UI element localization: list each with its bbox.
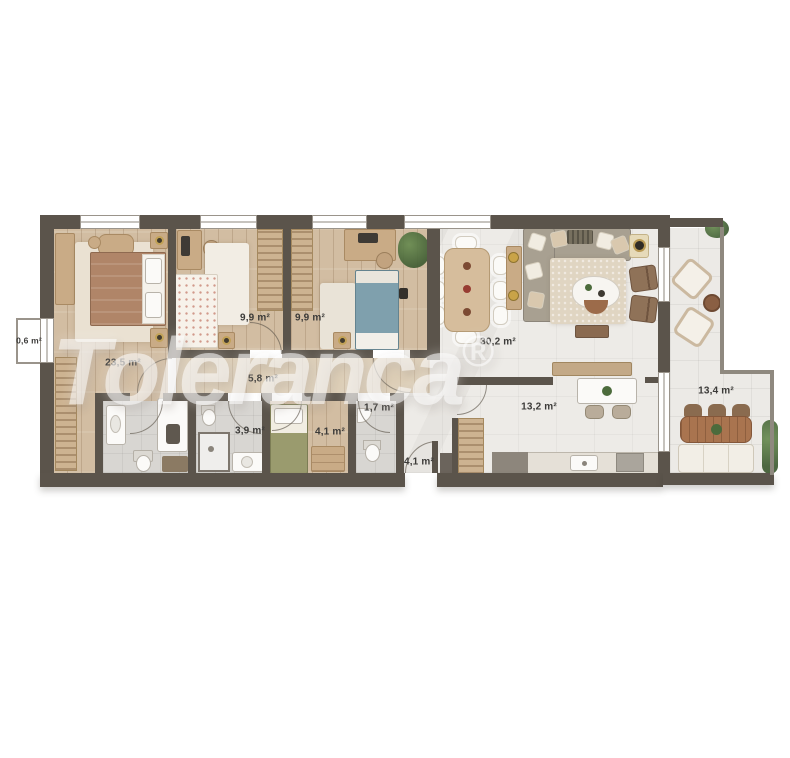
wall xyxy=(283,229,291,350)
bath-mat xyxy=(162,456,188,472)
window xyxy=(658,372,670,452)
room-label-shaft: 0,6 m² xyxy=(16,335,42,346)
window xyxy=(312,215,367,229)
tv-console xyxy=(575,325,609,338)
room-label-hallway: 5,8 m² xyxy=(248,374,278,385)
wall xyxy=(645,377,658,383)
wall xyxy=(188,401,196,473)
terrace-wall xyxy=(662,218,723,227)
room-label-study: 4,1 m² xyxy=(315,427,345,438)
wall xyxy=(163,393,228,401)
wall xyxy=(390,393,404,401)
shoe-cabinet xyxy=(440,453,452,473)
dining-chair xyxy=(455,330,477,344)
outdoor-bench xyxy=(678,444,754,473)
wall xyxy=(40,363,54,473)
toilet xyxy=(136,455,151,472)
plate xyxy=(463,308,471,316)
sofa-cushion xyxy=(550,230,569,249)
room-label-terrace: 13,4 m² xyxy=(698,386,734,397)
wardrobe xyxy=(55,357,77,471)
bed-single xyxy=(175,274,218,348)
terrace-rail xyxy=(720,370,774,374)
dresser xyxy=(311,446,345,472)
room-label-kitchen: 13,2 m² xyxy=(521,402,557,413)
plate xyxy=(463,262,471,270)
lamp-icon xyxy=(508,290,519,301)
window xyxy=(40,318,54,363)
lamp-icon xyxy=(222,336,231,345)
wall xyxy=(40,473,405,487)
round-table xyxy=(703,294,721,312)
wardrobe xyxy=(257,229,283,311)
side-table xyxy=(88,236,101,249)
terrace-rail xyxy=(720,227,724,374)
room-label-living-dining: 30,2 m² xyxy=(480,337,516,348)
pillow xyxy=(145,258,162,284)
bench xyxy=(55,233,75,305)
armchair xyxy=(629,294,659,323)
drain-icon xyxy=(208,446,214,452)
armchair xyxy=(628,264,658,293)
wall-tv-icon xyxy=(399,288,408,299)
wall xyxy=(302,393,358,401)
sofa-tray xyxy=(567,230,593,244)
lamp-icon xyxy=(338,336,347,345)
room-label-bedroom3: 9,9 m² xyxy=(295,313,325,324)
basin xyxy=(241,456,253,468)
desk-chair xyxy=(376,252,393,269)
monitor-icon xyxy=(181,236,190,256)
wall xyxy=(348,401,356,473)
sideboard xyxy=(552,362,632,376)
sliding-door xyxy=(658,247,670,302)
wall xyxy=(427,229,440,360)
wall xyxy=(658,215,670,247)
bed-single xyxy=(355,270,399,350)
lamp-icon xyxy=(508,252,519,263)
entry-closet xyxy=(458,418,484,475)
terrace-rail xyxy=(770,370,774,475)
monitor-icon xyxy=(358,233,378,243)
stove xyxy=(616,453,644,472)
wall xyxy=(658,302,670,372)
plant-icon xyxy=(585,284,592,291)
toilet xyxy=(202,409,216,426)
wall xyxy=(437,473,663,487)
pillow xyxy=(145,292,162,318)
wall xyxy=(40,215,54,318)
plant-icon xyxy=(602,386,612,396)
wall xyxy=(367,215,404,229)
wall xyxy=(658,452,670,473)
wall xyxy=(457,377,553,385)
shower xyxy=(198,432,230,472)
sofa-cushion xyxy=(527,291,546,310)
plant-icon xyxy=(711,424,722,435)
wardrobe xyxy=(291,229,313,311)
floor-plan: 0,6 m² 23,5 m² 9,9 m² 9,9 m² 5,8 m² 3,9 … xyxy=(0,0,790,758)
wall xyxy=(95,393,103,473)
plate xyxy=(463,285,471,293)
wall xyxy=(491,215,662,229)
decor xyxy=(598,290,605,297)
candle-icon xyxy=(633,239,646,252)
wall xyxy=(168,229,176,358)
window xyxy=(404,215,491,229)
wall xyxy=(282,350,291,358)
wall xyxy=(261,393,272,401)
lamp-icon xyxy=(155,236,164,245)
wall xyxy=(452,418,458,473)
wall xyxy=(262,401,270,473)
room-label-bedroom2: 9,9 m² xyxy=(240,313,270,324)
wall xyxy=(291,350,373,358)
wall xyxy=(257,215,312,229)
wall xyxy=(396,401,404,473)
window xyxy=(200,215,257,229)
bar-stool xyxy=(612,405,631,419)
room-label-bathroom: 3,9 m² xyxy=(235,426,265,437)
room-label-bedroom1: 23,5 m² xyxy=(105,358,141,369)
lamp-icon xyxy=(155,333,164,342)
bar-stool xyxy=(585,405,604,419)
room-label-wc: 1,7 m² xyxy=(364,403,394,414)
toilet xyxy=(365,444,380,462)
room-label-entrance-hall: 4,1 m² xyxy=(404,457,434,468)
terrace-wall xyxy=(663,473,774,485)
plant-icon xyxy=(398,232,430,268)
faucet-icon xyxy=(582,461,587,466)
shower-seat xyxy=(166,424,180,444)
wall xyxy=(140,215,200,229)
fridge-cabinet xyxy=(492,452,528,473)
window xyxy=(80,215,140,229)
basin xyxy=(110,415,121,433)
wall xyxy=(176,350,250,358)
